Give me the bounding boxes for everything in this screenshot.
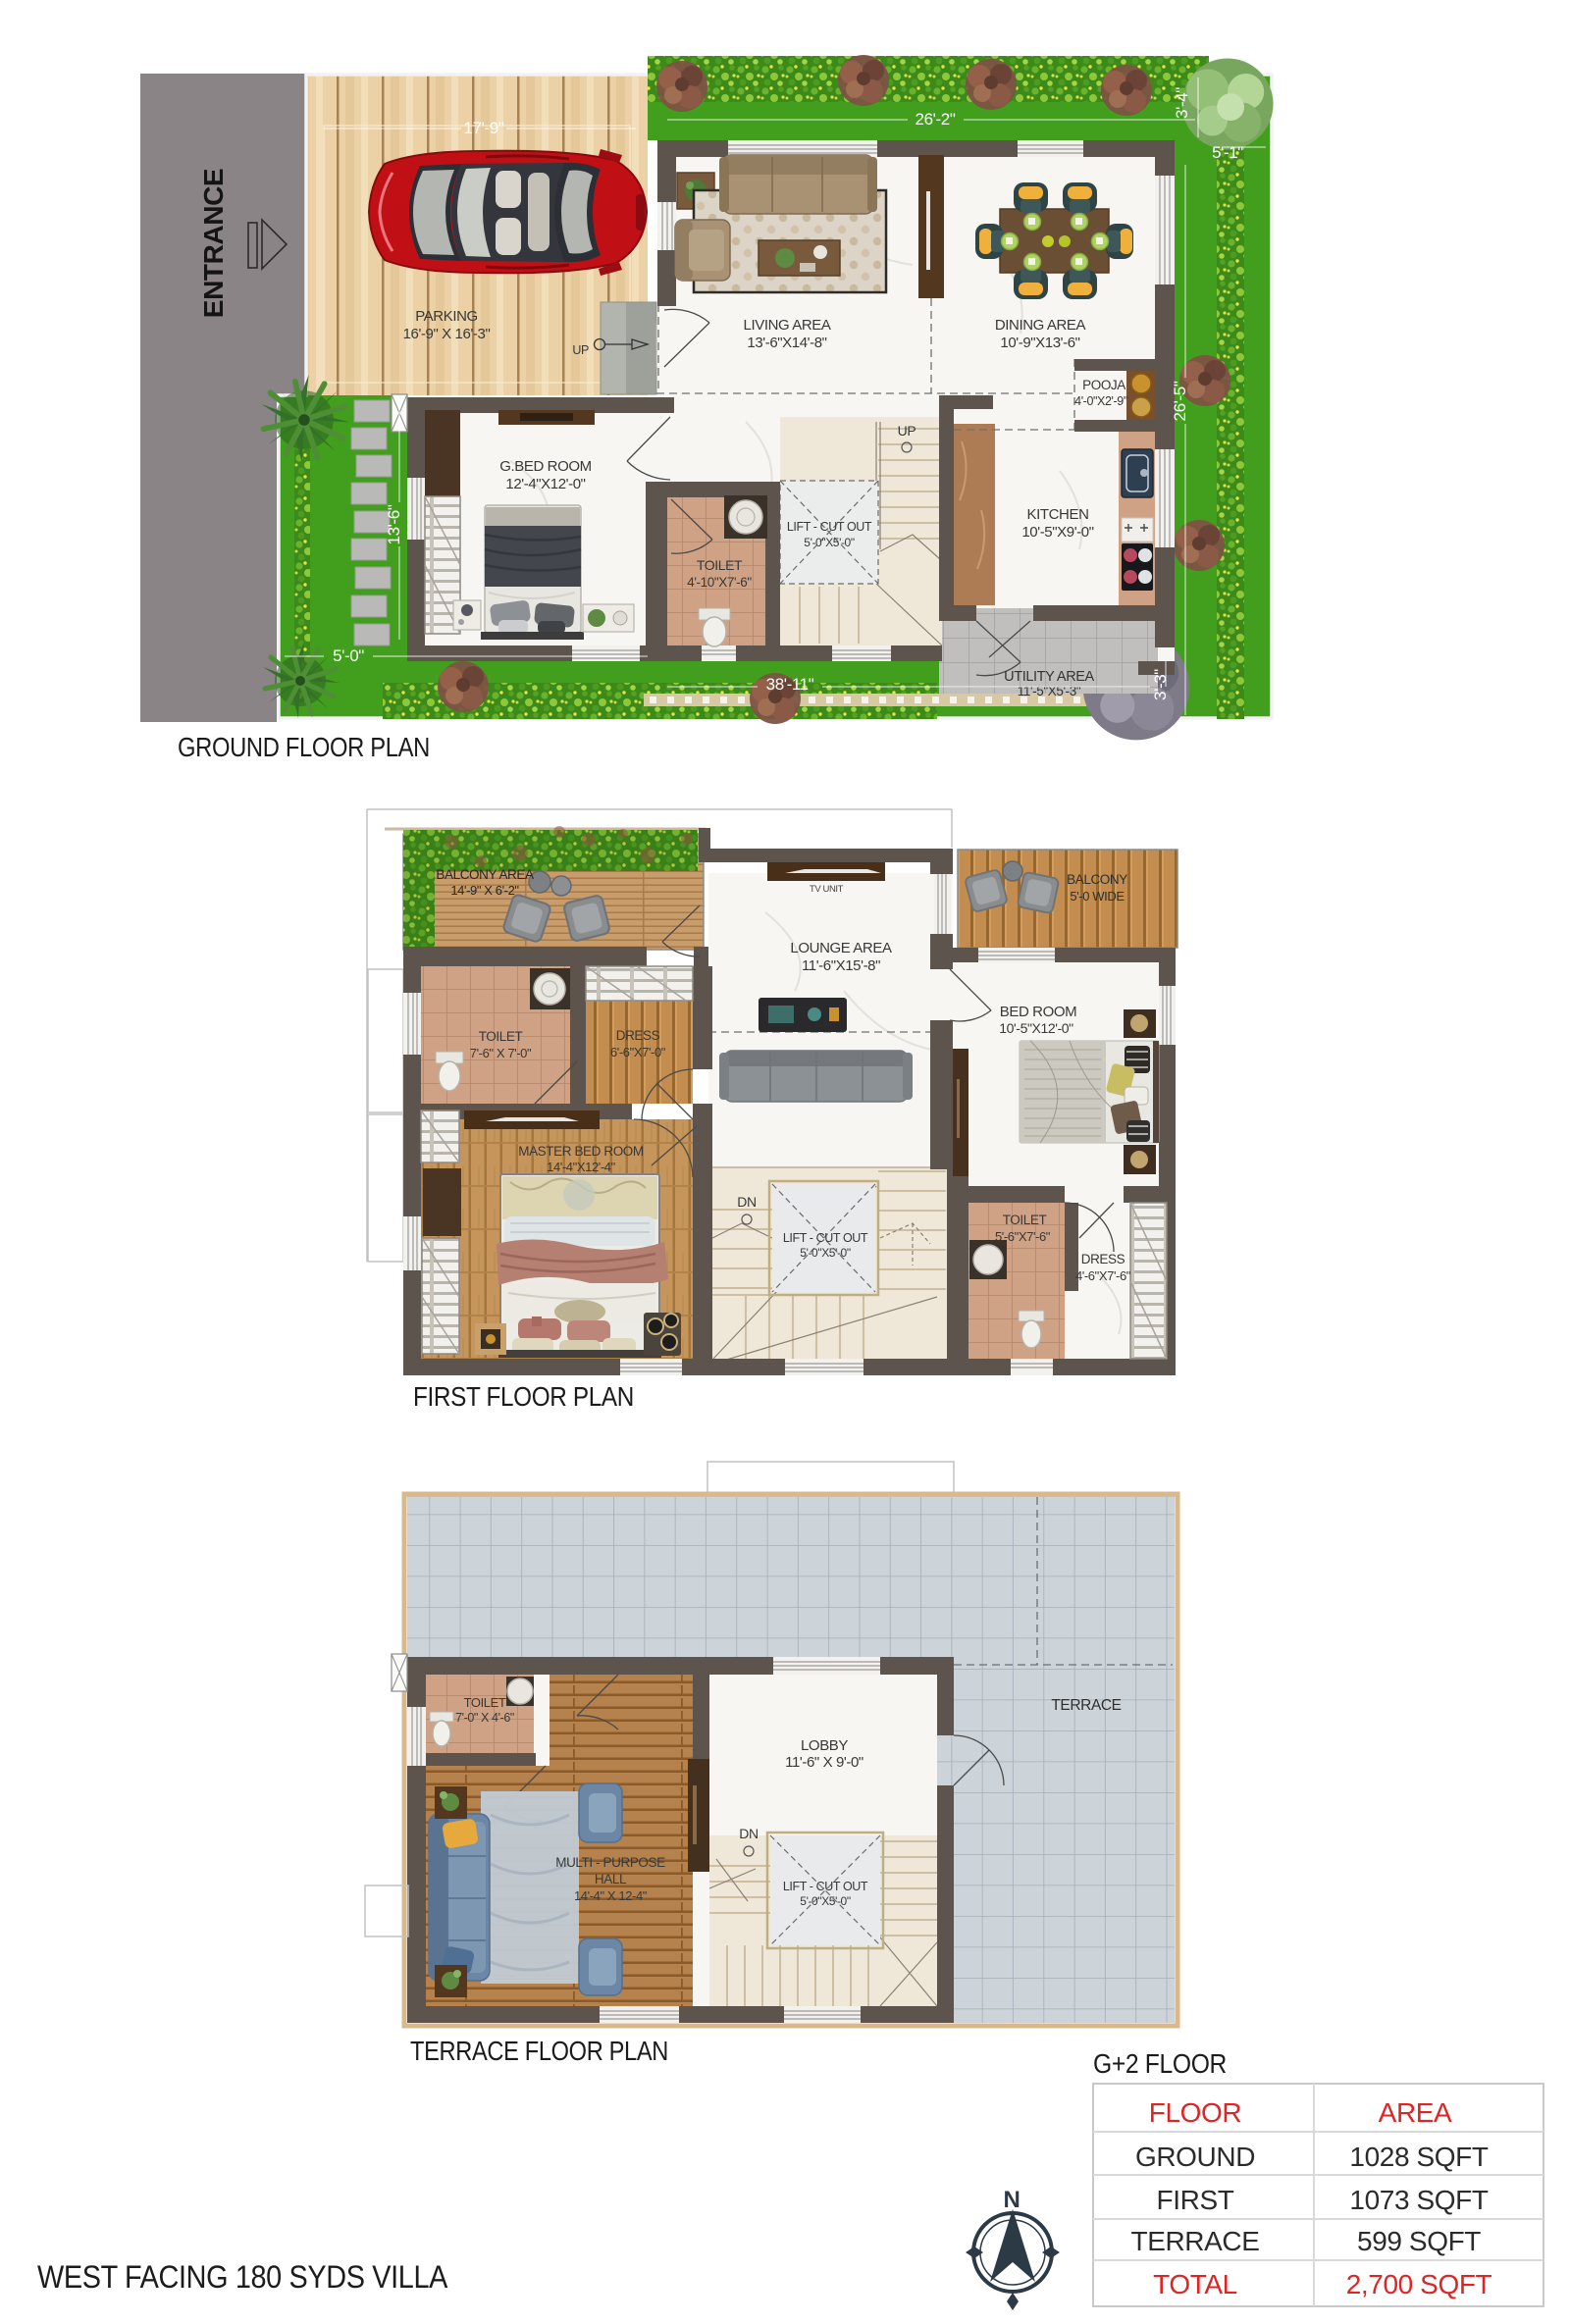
svg-text:14'-4" X 12-4": 14'-4" X 12-4" xyxy=(574,1888,648,1903)
svg-text:UP: UP xyxy=(572,343,589,357)
svg-text:DN: DN xyxy=(737,1194,756,1210)
svg-text:GROUND FLOOR PLAN: GROUND FLOOR PLAN xyxy=(178,732,430,762)
svg-text:DRESS: DRESS xyxy=(1081,1252,1125,1266)
svg-text:DN: DN xyxy=(739,1826,758,1841)
svg-text:LIFT - CUT OUT: LIFT - CUT OUT xyxy=(783,1880,868,1893)
svg-text:LIFT - CUT OUT: LIFT - CUT OUT xyxy=(787,520,872,534)
svg-text:TOILET: TOILET xyxy=(697,557,743,573)
svg-text:5'-0"X5'-0": 5'-0"X5'-0" xyxy=(804,536,855,549)
svg-text:LIFT - CUT OUT: LIFT - CUT OUT xyxy=(783,1231,868,1245)
svg-text:DRESS: DRESS xyxy=(616,1028,660,1043)
svg-text:4'-6"X7'-6": 4'-6"X7'-6" xyxy=(1075,1268,1131,1283)
svg-text:TOILET: TOILET xyxy=(479,1029,523,1044)
svg-text:11'-6"X15'-8": 11'-6"X15'-8" xyxy=(802,957,880,974)
svg-text:12'-4"X12'-0": 12'-4"X12'-0" xyxy=(505,476,585,492)
svg-text:DINING AREA: DINING AREA xyxy=(995,317,1086,334)
svg-text:10'-5"X9'-0": 10'-5"X9'-0" xyxy=(1021,524,1093,541)
svg-text:G.BED ROOM: G.BED ROOM xyxy=(499,458,592,475)
svg-text:FIRST: FIRST xyxy=(1157,2185,1234,2215)
svg-text:11'-5"X5'-3": 11'-5"X5'-3" xyxy=(1018,684,1081,698)
svg-text:14'-9" X 6'-2": 14'-9" X 6'-2" xyxy=(450,883,519,898)
svg-text:3'-4": 3'-4" xyxy=(1173,87,1191,119)
svg-text:13'-6"X14'-8": 13'-6"X14'-8" xyxy=(747,335,826,351)
svg-text:UP: UP xyxy=(898,423,916,439)
svg-text:ENTRANCE: ENTRANCE xyxy=(198,169,229,318)
svg-text:5'-0 WIDE: 5'-0 WIDE xyxy=(1070,889,1125,904)
svg-text:6'-6"X7'-0": 6'-6"X7'-0" xyxy=(610,1045,666,1059)
svg-text:13'-6": 13'-6" xyxy=(385,504,403,544)
svg-text:LOUNGE AREA: LOUNGE AREA xyxy=(790,940,892,956)
svg-text:5'-1": 5'-1" xyxy=(1212,143,1243,162)
svg-text:5'-0"X5'-0": 5'-0"X5'-0" xyxy=(800,1246,851,1260)
svg-text:TERRACE: TERRACE xyxy=(1131,2226,1260,2256)
svg-text:17'-9": 17'-9" xyxy=(464,119,504,137)
svg-text:G+2 FLOOR: G+2 FLOOR xyxy=(1093,2048,1227,2079)
svg-text:599 SQFT: 599 SQFT xyxy=(1357,2226,1481,2256)
svg-text:POOJA: POOJA xyxy=(1082,378,1125,392)
svg-text:4'-0"X2'-9": 4'-0"X2'-9" xyxy=(1074,394,1127,408)
svg-text:TV UNIT: TV UNIT xyxy=(810,884,844,895)
svg-text:TOTAL: TOTAL xyxy=(1153,2269,1237,2299)
svg-text:FIRST FLOOR PLAN: FIRST FLOOR PLAN xyxy=(413,1381,634,1412)
svg-text:10'-9"X13'-6": 10'-9"X13'-6" xyxy=(1000,335,1079,351)
svg-text:LIVING AREA: LIVING AREA xyxy=(744,317,831,334)
svg-text:3'-3": 3'-3" xyxy=(1151,669,1170,700)
svg-text:1073 SQFT: 1073 SQFT xyxy=(1349,2185,1488,2215)
svg-text:HALL: HALL xyxy=(595,1872,627,1886)
svg-text:PARKING: PARKING xyxy=(415,308,478,325)
svg-text:5'-0": 5'-0" xyxy=(333,646,364,665)
svg-text:AREA: AREA xyxy=(1379,2097,1452,2128)
svg-text:KITCHEN: KITCHEN xyxy=(1026,506,1088,523)
svg-text:TOILET: TOILET xyxy=(464,1695,506,1710)
svg-text:UTILITY AREA: UTILITY AREA xyxy=(1004,669,1094,685)
svg-text:BALCONY: BALCONY xyxy=(1067,872,1127,887)
svg-text:N: N xyxy=(1004,2187,1020,2213)
svg-text:16'-9" X 16'-3": 16'-9" X 16'-3" xyxy=(403,326,491,342)
svg-text:MULTI - PURPOSE: MULTI - PURPOSE xyxy=(555,1855,665,1870)
svg-text:38'-11": 38'-11" xyxy=(766,675,814,694)
svg-text:26'-2": 26'-2" xyxy=(916,110,956,129)
svg-text:1028 SQFT: 1028 SQFT xyxy=(1349,2142,1488,2172)
svg-text:GROUND: GROUND xyxy=(1135,2142,1255,2172)
svg-text:TERRACE FLOOR PLAN: TERRACE FLOOR PLAN xyxy=(410,2036,668,2066)
svg-text:FLOOR: FLOOR xyxy=(1149,2097,1241,2128)
svg-text:14'-4"X12'-4": 14'-4"X12'-4" xyxy=(547,1160,615,1174)
svg-text:5'-0"X5'-0": 5'-0"X5'-0" xyxy=(800,1894,851,1908)
svg-text:26'-5": 26'-5" xyxy=(1171,381,1189,421)
svg-text:4'-10"X7'-6": 4'-10"X7'-6" xyxy=(687,575,752,590)
svg-text:TERRACE: TERRACE xyxy=(1051,1697,1121,1714)
svg-text:WEST FACING 180 SYDS VILLA: WEST FACING 180 SYDS VILLA xyxy=(37,2259,448,2295)
svg-text:10'-5"X12'-0": 10'-5"X12'-0" xyxy=(999,1020,1073,1036)
svg-text:LOBBY: LOBBY xyxy=(801,1737,848,1754)
svg-text:TOILET: TOILET xyxy=(1003,1213,1047,1227)
svg-text:5'-6"X7'-6": 5'-6"X7'-6" xyxy=(995,1229,1051,1244)
svg-text:7'-0" X 4'-6": 7'-0" X 4'-6" xyxy=(455,1711,514,1725)
svg-text:2,700 SQFT: 2,700 SQFT xyxy=(1346,2269,1492,2299)
svg-text:7'-6" X 7'-0": 7'-6" X 7'-0" xyxy=(470,1046,532,1060)
svg-text:MASTER BED ROOM: MASTER BED ROOM xyxy=(518,1144,644,1159)
svg-text:11'-6" X 9'-0": 11'-6" X 9'-0" xyxy=(785,1754,863,1771)
svg-text:BALCONY AREA: BALCONY AREA xyxy=(436,867,534,882)
svg-text:BED ROOM: BED ROOM xyxy=(1000,1004,1076,1020)
